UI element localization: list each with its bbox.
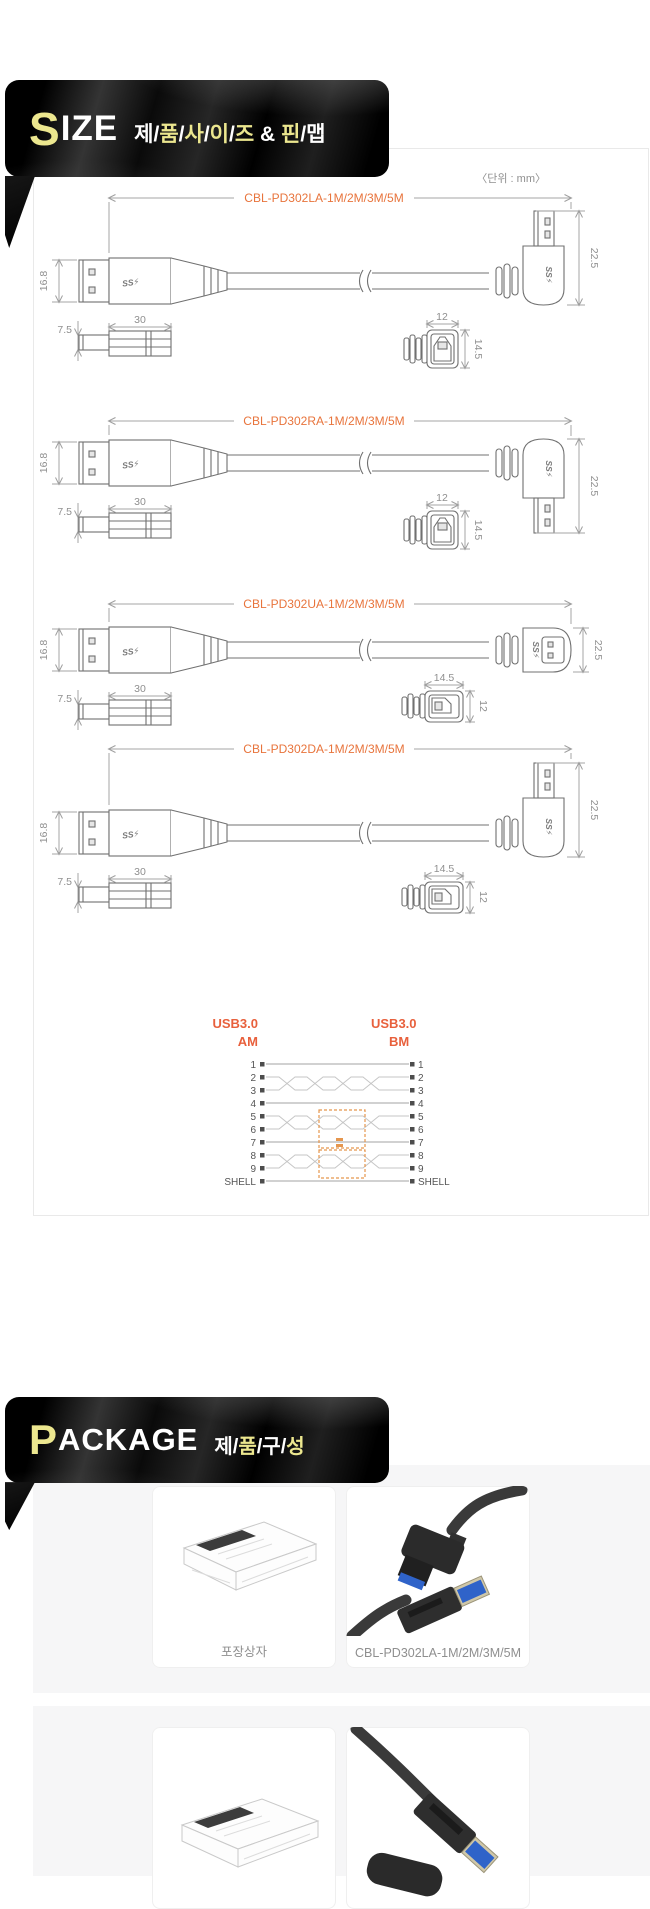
svg-text:2: 2 (250, 1073, 256, 1084)
card-caption: 포장상자 (152, 1641, 336, 1660)
package-contents-row-1: 포장상자 CBL-PD302LA-1M/2M/3M/5M (33, 1465, 650, 1693)
svg-text:5: 5 (418, 1112, 424, 1123)
pinmap-right-sub: BM (389, 1034, 409, 1049)
model-label: CBL-PD302UA-1M/2M/3M/5M (243, 597, 404, 611)
diagram-da: CBL-PD302DA-1M/2M/3M/5M (38, 742, 600, 913)
package-box-photo (152, 1486, 336, 1636)
unit-note: 〈단위 : mm〉 (476, 172, 546, 185)
model-label: CBL-PD302DA-1M/2M/3M/5M (243, 742, 404, 756)
size-section-header: SIZE 제/품/사/이/즈 & 핀/맵 (5, 80, 389, 177)
svg-text:8: 8 (418, 1151, 424, 1162)
cable-photo (346, 1727, 530, 1909)
package-cable-card: CBL-PD302LA-1M/2M/3M/5M (346, 1486, 530, 1668)
package-box-photo (152, 1727, 336, 1909)
pinmap-diagram: USB3.0 AM USB3.0 BM (212, 1016, 450, 1188)
svg-text:3: 3 (418, 1086, 424, 1097)
package-box-card (152, 1727, 336, 1909)
cable-line (352, 1600, 406, 1636)
cable-photo (346, 1486, 530, 1636)
svg-text:7: 7 (250, 1138, 256, 1149)
svg-text:SHELL: SHELL (418, 1177, 450, 1188)
shield-tap-mark (336, 1144, 343, 1147)
product-detail-page: { "size_section": { "title_lead": "S", "… (0, 0, 650, 1811)
svg-text:2: 2 (418, 1073, 424, 1084)
svg-text:7: 7 (418, 1138, 424, 1149)
svg-text:4: 4 (418, 1099, 424, 1110)
svg-text:SHELL: SHELL (224, 1177, 256, 1188)
diagram-ra: CBL-PD302RA-1M/2M/3M/5M (38, 414, 600, 549)
svg-text:4: 4 (250, 1099, 256, 1110)
diagram-ua: CBL-PD302UA-1M/2M/3M/5M (38, 597, 604, 730)
package-contents-row-2 (33, 1706, 650, 1876)
dimension-drawings: 16.8 SS⚡ 30 (34, 149, 648, 1215)
svg-text:3: 3 (250, 1086, 256, 1097)
size-subtitle: 제/품/사/이/즈 & 핀/맵 (134, 110, 325, 148)
package-title-lead: P (29, 1416, 58, 1464)
package-title: ACKAGE (58, 1422, 198, 1458)
svg-text:1: 1 (250, 1060, 256, 1071)
cable-line (356, 1729, 432, 1801)
usb-a-connector (412, 1792, 500, 1875)
svg-text:5: 5 (250, 1112, 256, 1123)
card-caption: CBL-PD302LA-1M/2M/3M/5M (346, 1646, 530, 1660)
package-section-header: PACKAGE 제/품/구/성 (5, 1397, 389, 1483)
size-title-lead: S (29, 102, 61, 156)
package-cable-card (346, 1727, 530, 1909)
svg-text:9: 9 (418, 1164, 424, 1175)
package-subtitle: 제/품/구/성 (214, 1422, 304, 1459)
diagram-la: CBL-PD302LA-1M/2M/3M/5M (38, 191, 600, 368)
shield-tap-mark (336, 1138, 343, 1141)
svg-text:8: 8 (250, 1151, 256, 1162)
pinmap-left-sub: AM (238, 1034, 258, 1049)
svg-text:1: 1 (418, 1060, 424, 1071)
svg-text:6: 6 (418, 1125, 424, 1136)
model-label: CBL-PD302LA-1M/2M/3M/5M (244, 191, 403, 205)
pinmap-right-title: USB3.0 (371, 1016, 417, 1031)
second-connector (364, 1850, 445, 1899)
pinmap-left-title: USB3.0 (212, 1016, 258, 1031)
size-title: IZE (61, 109, 118, 149)
svg-text:6: 6 (250, 1125, 256, 1136)
size-diagram-panel: 16.8 SS⚡ 30 (33, 148, 649, 1216)
twisted-pair-wires (266, 1077, 409, 1168)
svg-text:9: 9 (250, 1164, 256, 1175)
cable-line (452, 1490, 522, 1530)
package-box-card: 포장상자 (152, 1486, 336, 1668)
model-label: CBL-PD302RA-1M/2M/3M/5M (243, 414, 404, 428)
